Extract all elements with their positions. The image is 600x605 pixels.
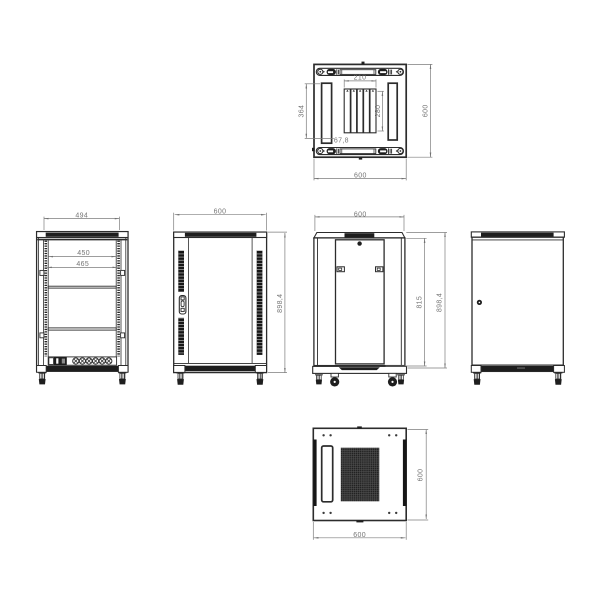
svg-text:280: 280 [375, 105, 382, 118]
svg-text:210: 210 [354, 75, 367, 82]
svg-text:364: 364 [299, 105, 306, 118]
svg-text:450: 450 [77, 250, 90, 257]
svg-text:898,4: 898,4 [437, 293, 444, 312]
svg-text:898,4: 898,4 [277, 294, 284, 313]
svg-text:465: 465 [76, 261, 89, 268]
svg-text:600: 600 [353, 532, 366, 539]
svg-text:815: 815 [416, 296, 423, 309]
svg-text:600: 600 [354, 211, 367, 218]
svg-text:600: 600 [214, 209, 227, 216]
svg-text:600: 600 [354, 172, 367, 179]
svg-text:600: 600 [417, 469, 424, 482]
svg-text:67,8: 67,8 [334, 138, 349, 145]
svg-text:600: 600 [422, 104, 429, 117]
svg-text:494: 494 [75, 212, 88, 219]
